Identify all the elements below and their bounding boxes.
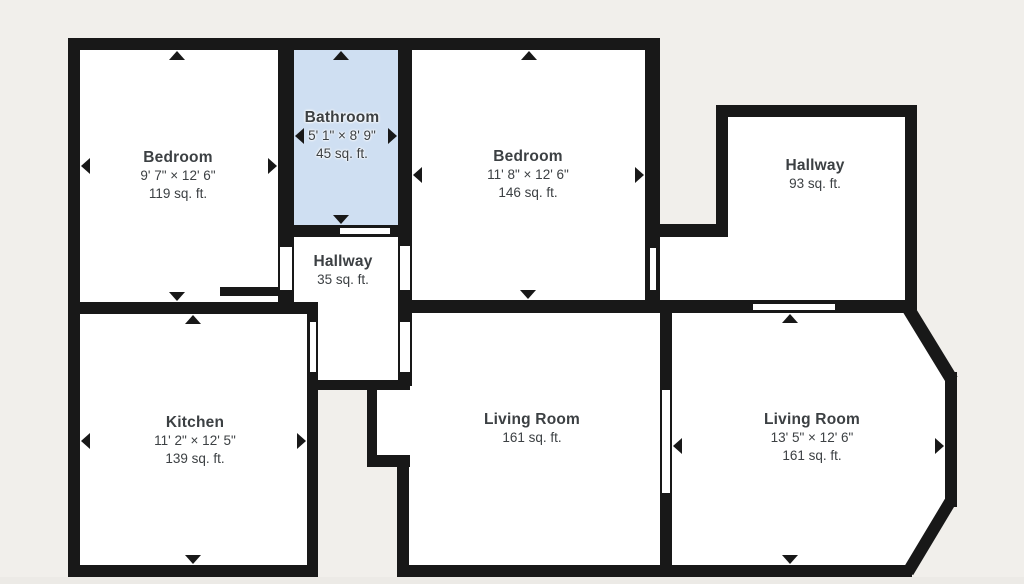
room-label-hallway-middle: Hallway 35 sq. ft.	[313, 253, 372, 289]
room-label-living-room-right: Living Room 13' 5" × 12' 6" 161 sq. ft.	[764, 411, 860, 465]
room-area: 45 sq. ft.	[305, 145, 380, 163]
room-dimensions: 11' 8" × 12' 6"	[487, 166, 569, 184]
room-shape-hallway-upper[interactable]	[652, 110, 910, 308]
room-name: Living Room	[484, 411, 580, 429]
room-label-bathroom: Bathroom 5' 1" × 8' 9" 45 sq. ft.	[305, 109, 380, 163]
room-dimensions: 13' 5" × 12' 6"	[764, 429, 860, 447]
room-label-bedroom-1: Bedroom 9' 7" × 12' 6" 119 sq. ft.	[140, 149, 215, 203]
room-name: Bathroom	[305, 109, 380, 127]
room-dimensions: 9' 7" × 12' 6"	[140, 167, 215, 185]
room-name: Living Room	[764, 411, 860, 429]
floor-plan-drawing	[0, 0, 1024, 584]
room-area: 35 sq. ft.	[313, 271, 372, 289]
room-area: 119 sq. ft.	[140, 185, 215, 203]
room-area: 161 sq. ft.	[764, 447, 860, 465]
room-label-living-room-middle: Living Room 161 sq. ft.	[484, 411, 580, 447]
room-name: Hallway	[785, 157, 844, 175]
room-area: 146 sq. ft.	[487, 184, 569, 202]
room-name: Bedroom	[140, 149, 215, 167]
page-bottom-edge	[0, 577, 1024, 584]
room-name: Hallway	[313, 253, 372, 271]
room-label-kitchen: Kitchen 11' 2" × 12' 5" 139 sq. ft.	[154, 414, 236, 468]
room-label-hallway-upper: Hallway 93 sq. ft.	[785, 157, 844, 193]
floor-plan: Bedroom 9' 7" × 12' 6" 119 sq. ft. Bathr…	[0, 0, 1024, 584]
room-area: 93 sq. ft.	[785, 175, 844, 193]
room-area: 139 sq. ft.	[154, 450, 236, 468]
room-name: Bedroom	[487, 148, 569, 166]
room-label-bedroom-2: Bedroom 11' 8" × 12' 6" 146 sq. ft.	[487, 148, 569, 202]
room-name: Kitchen	[154, 414, 236, 432]
room-dimensions: 11' 2" × 12' 5"	[154, 432, 236, 450]
room-area: 161 sq. ft.	[484, 429, 580, 447]
room-dimensions: 5' 1" × 8' 9"	[305, 127, 380, 145]
